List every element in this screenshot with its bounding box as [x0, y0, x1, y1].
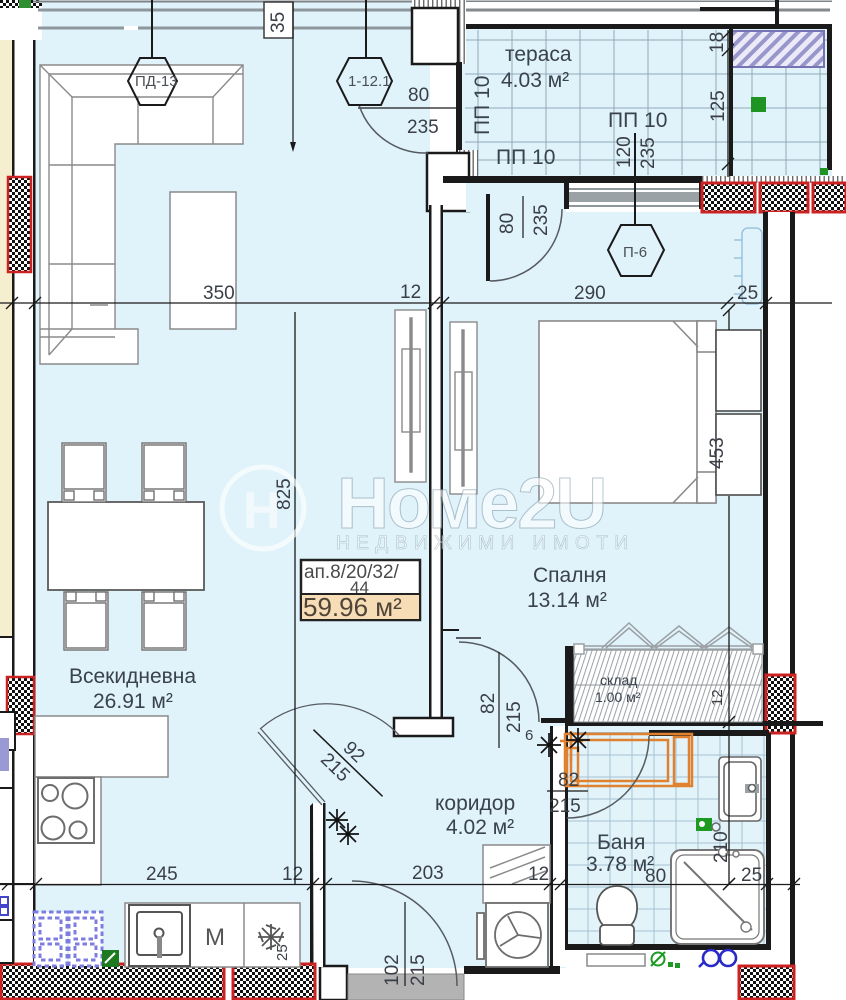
- svg-text:склад: склад: [600, 672, 637, 688]
- svg-text:25: 25: [274, 944, 291, 961]
- svg-text:80: 80: [408, 85, 429, 106]
- svg-text:12: 12: [528, 864, 549, 885]
- svg-text:Баня: Баня: [597, 831, 645, 854]
- svg-text:4.02 м²: 4.02 м²: [446, 816, 514, 839]
- svg-text:235: 235: [407, 117, 439, 138]
- svg-text:ПД-13: ПД-13: [135, 73, 178, 90]
- svg-text:Спалня: Спалня: [533, 564, 606, 587]
- svg-text:210: 210: [711, 831, 732, 863]
- svg-text:215: 215: [504, 701, 525, 733]
- svg-text:235: 235: [531, 204, 552, 236]
- svg-text:Номе2U: Номе2U: [337, 464, 605, 544]
- svg-text:M: M: [205, 924, 225, 951]
- svg-text:тераса: тераса: [505, 43, 572, 66]
- svg-text:82: 82: [478, 693, 499, 714]
- svg-text:35: 35: [268, 12, 289, 33]
- svg-text:12: 12: [400, 282, 421, 303]
- svg-text:120: 120: [614, 136, 635, 168]
- svg-text:26.91 м²: 26.91 м²: [93, 690, 173, 713]
- svg-text:3.78 м²: 3.78 м²: [586, 853, 654, 876]
- svg-text:453: 453: [707, 437, 728, 469]
- svg-text:125: 125: [708, 90, 729, 122]
- svg-text:Всекидневна: Всекидневна: [69, 665, 196, 688]
- svg-text:13.14 м²: 13.14 м²: [527, 589, 607, 612]
- svg-text:6: 6: [525, 727, 533, 744]
- svg-text:12: 12: [282, 864, 303, 885]
- svg-text:245: 245: [146, 864, 178, 885]
- svg-text:коридор: коридор: [435, 792, 515, 815]
- svg-text:102: 102: [382, 954, 403, 986]
- svg-text:59.96 м²: 59.96 м²: [303, 592, 402, 622]
- svg-text:203: 203: [412, 863, 444, 884]
- svg-text:Н: Н: [243, 482, 281, 540]
- svg-text:82: 82: [558, 770, 579, 791]
- svg-text:НЕДВИЖИМИ ИМОТИ: НЕДВИЖИМИ ИМОТИ: [336, 533, 635, 554]
- svg-text:4.03 м²: 4.03 м²: [501, 69, 569, 92]
- svg-text:215: 215: [408, 954, 429, 986]
- svg-text:12: 12: [709, 689, 726, 706]
- svg-text:П-6: П-6: [623, 244, 647, 261]
- svg-text:ПП 10: ПП 10: [471, 76, 494, 135]
- svg-text:80: 80: [497, 213, 518, 234]
- svg-text:18: 18: [707, 32, 728, 53]
- svg-text:25: 25: [737, 283, 758, 304]
- svg-text:ПП 10: ПП 10: [608, 109, 667, 132]
- svg-text:25: 25: [741, 865, 762, 886]
- svg-text:290: 290: [574, 283, 606, 304]
- svg-text:ПП 10: ПП 10: [496, 146, 555, 169]
- svg-text:215: 215: [549, 796, 581, 817]
- svg-text:350: 350: [203, 283, 235, 304]
- svg-text:1-12.1: 1-12.1: [348, 73, 391, 90]
- svg-text:235: 235: [638, 137, 659, 169]
- svg-text:1.00 м²: 1.00 м²: [595, 689, 641, 705]
